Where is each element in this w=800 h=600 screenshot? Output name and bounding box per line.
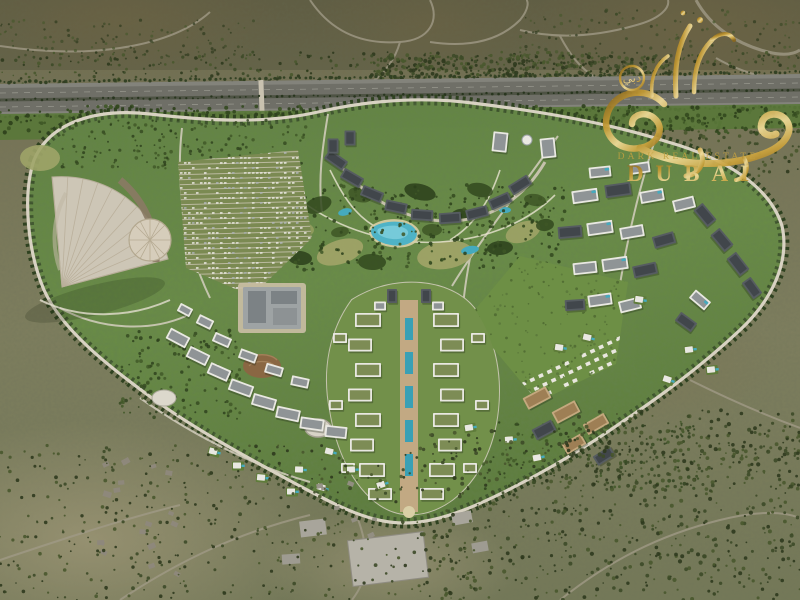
aerial-masterplan-render: دبي DARK REAL ESTATE DUBAI <box>0 0 800 600</box>
watermark-arabic: دبي <box>623 71 642 85</box>
watermark-text-dubai: DUBAI <box>627 161 761 186</box>
masterplan-svg: دبي DARK REAL ESTATE DUBAI <box>0 0 800 600</box>
circular-lawn <box>20 145 60 171</box>
plaza-circle <box>403 506 415 518</box>
round-building <box>152 390 176 406</box>
